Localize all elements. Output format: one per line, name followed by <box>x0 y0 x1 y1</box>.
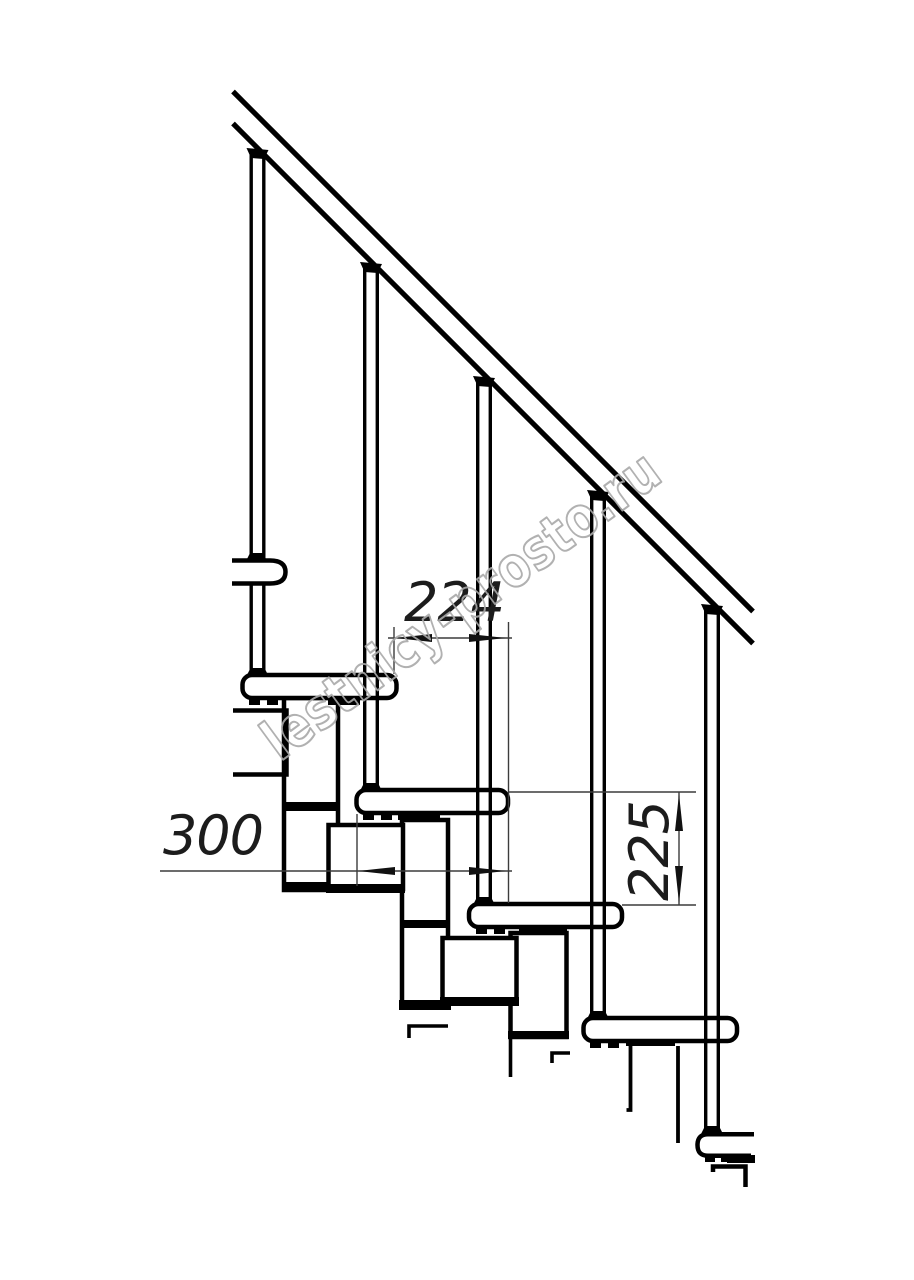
dimension-rise-label: 225 <box>618 801 681 901</box>
baluster-5 <box>701 604 724 1135</box>
support-module-3 <box>440 933 570 1077</box>
support-module-4 <box>627 1046 679 1143</box>
tube-2-cut-hook <box>409 1026 448 1038</box>
technical-drawing: 224 300 225 lestnicy-prosto.ru <box>0 0 914 1280</box>
tube-3-joint-band <box>508 1031 569 1039</box>
dimension-rise: 225 <box>508 792 696 905</box>
baluster-3-tread-collar <box>473 897 496 906</box>
tube-4-left-edge <box>627 1046 631 1110</box>
box-3-bottom-band <box>440 997 519 1006</box>
box-2-bottom-band <box>326 884 405 893</box>
baluster-4-tread-collar <box>587 1011 610 1020</box>
tread-2 <box>357 790 509 813</box>
module-box-5-partial <box>713 1167 746 1188</box>
baluster-4 <box>587 490 610 1020</box>
baluster-1 <box>246 148 269 677</box>
tread-5-partial <box>698 1134 755 1156</box>
drawing-page: 224 300 225 lestnicy-prosto.ru <box>0 0 914 1280</box>
support-module-5 <box>713 1167 746 1188</box>
watermark-text: lestnicy-prosto.ru <box>250 438 674 773</box>
riser-tube-3 <box>511 933 567 1037</box>
baluster-2-tread-collar <box>360 783 383 792</box>
baluster-1-tread-collar <box>246 668 269 677</box>
handrail-cross-section <box>232 553 286 584</box>
dimension-depth-label: 300 <box>163 804 263 867</box>
module-box-3 <box>443 938 517 1002</box>
tread-4 <box>584 1018 738 1041</box>
handrail-top-line <box>233 92 753 612</box>
module-box-2 <box>329 825 404 889</box>
tread-3 <box>469 904 622 927</box>
arrowhead-right <box>469 867 506 875</box>
tube-1-joint-band <box>282 802 340 811</box>
tube-3-cut-hook <box>552 1053 570 1063</box>
support-module-2 <box>326 820 451 1038</box>
tube-2-joint-band <box>400 920 450 928</box>
baluster-5-tread-collar <box>701 1126 724 1135</box>
